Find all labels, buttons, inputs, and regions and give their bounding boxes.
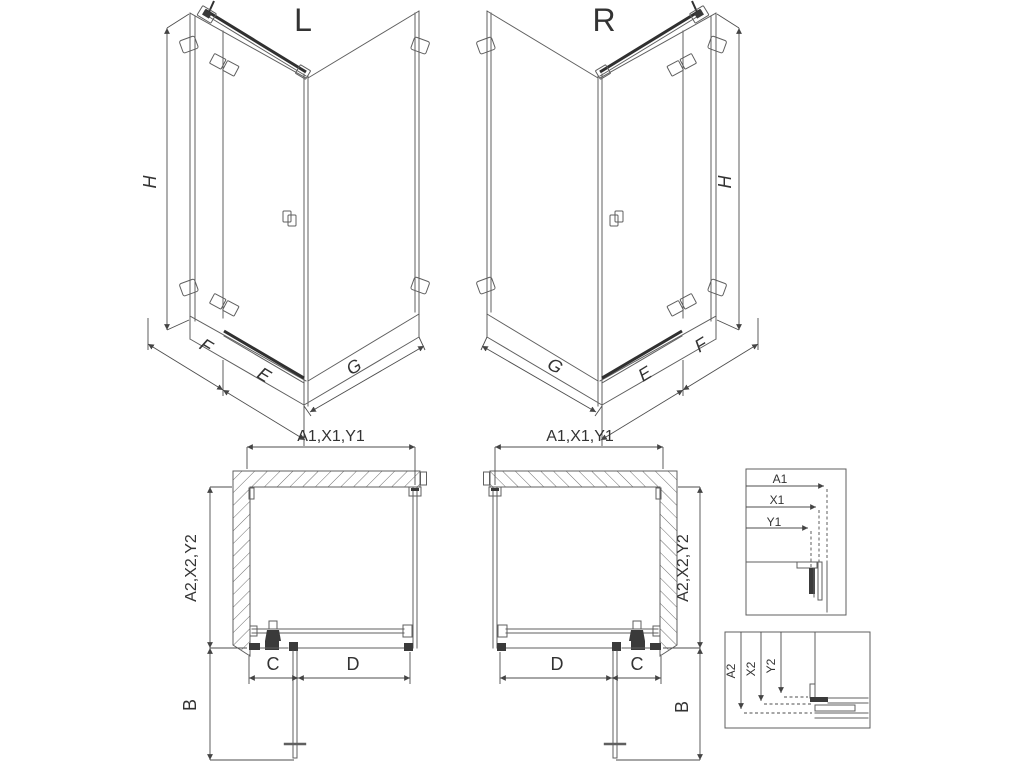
iso-left-geometry	[148, 1, 430, 446]
detail-x2-label: X2	[744, 661, 758, 676]
dim-label-f-left: F	[196, 334, 217, 357]
drawing-sheet: L H F E G R H F E G A1,X1,Y1 A2,X2,Y2 B …	[0, 0, 1024, 768]
iso-right-geometry	[476, 1, 758, 446]
plan-left-d-label: D	[347, 654, 360, 674]
detail-y2-label: Y2	[764, 658, 778, 673]
dim-label-e-left: E	[254, 363, 275, 387]
detail-a2-label: A2	[724, 663, 738, 678]
plan-right-width-label: A1,X1,Y1	[546, 428, 614, 445]
iso-left-title: L	[294, 2, 312, 38]
plan-glass-panels	[249, 487, 421, 758]
shower-enclosure-technical-drawing: L H F E G R H F E G A1,X1,Y1 A2,X2,Y2 B …	[0, 0, 1024, 768]
dim-label-height-right: H	[715, 175, 735, 189]
dim-label-height-left: H	[140, 175, 160, 189]
plan-right-b-label: B	[672, 701, 692, 713]
plan-walls	[233, 471, 420, 656]
detail-a1-label: A1	[773, 472, 788, 486]
plan-right-geometry	[484, 447, 701, 760]
plan-left-c-label: C	[267, 654, 280, 674]
iso-right-title: R	[592, 2, 615, 38]
detail-width-profile	[746, 562, 827, 612]
plan-left-b-label: B	[180, 699, 200, 711]
dim-label-f-right: F	[691, 333, 712, 356]
plan-right-d-label: D	[551, 654, 564, 674]
plan-left-depth-label: A2,X2,Y2	[183, 534, 200, 602]
detail-depth-profile	[810, 632, 868, 718]
detail-y1-label: Y1	[767, 515, 782, 529]
plan-right-c-label: C	[631, 654, 644, 674]
plan-right-depth-label: A2,X2,Y2	[675, 534, 692, 602]
dim-label-e-right: E	[635, 362, 656, 386]
detail-x1-label: X1	[770, 493, 785, 507]
detail-width-box	[746, 469, 846, 615]
dim-label-g-right: G	[544, 354, 566, 378]
plan-left-width-label: A1,X1,Y1	[297, 428, 365, 445]
door-handle-icon	[283, 211, 291, 222]
plan-left-geometry	[210, 447, 427, 760]
detail-depth-box	[725, 632, 870, 728]
